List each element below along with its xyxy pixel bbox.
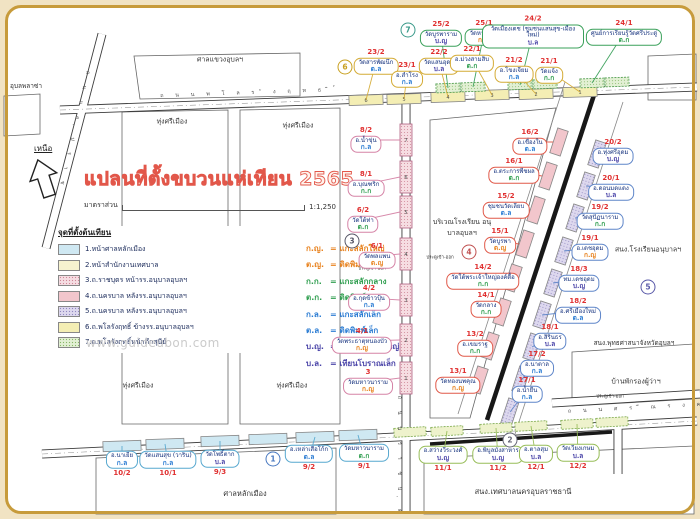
candle-label: 24/2วัดเมืองเดช (ชุมชนแสนสุข-เมืองใหม่)บ…	[482, 15, 584, 48]
candle-type: ก.ล	[144, 459, 191, 466]
legend-item-label: 6.ถ.พโลรังฤทธิ์ ข้างรร.อนุบาลอุบลฯ	[85, 322, 194, 333]
legend-swatch	[58, 260, 80, 271]
candle-label-bubble: อ.พิบูลมังสาหารบ.ญ	[472, 446, 523, 464]
candle-label-bubble: อ.น้ำขุ่นก.ล	[350, 135, 381, 153]
candle-label-bubble: อ.เหล่าเสือโก้กต.ล	[285, 445, 333, 463]
candle-label-number: 12/2	[569, 463, 586, 471]
candle-type: ก.ล	[517, 394, 538, 401]
candle-type: ก.ญ	[577, 252, 604, 259]
candle-label-number: 19/1	[581, 235, 598, 243]
legend-item-label: 2.หน้าสำนักงานเทศบาล	[85, 260, 158, 271]
candle-label: 15/2ชุมชนวัดเลียบต.ล	[483, 193, 530, 219]
watermark: www.guideubon.com	[86, 336, 220, 350]
candle-type: บ.ล	[593, 192, 629, 199]
type-key-abbr: บ.ญ.	[306, 340, 330, 353]
candle-label-number: 23/2	[367, 49, 384, 57]
type-key-abbr: ก.ล.	[306, 308, 330, 321]
legend-item-label: 4.ถ.นครบาล หลังรร.อนุบาลอุบลฯ	[85, 291, 187, 302]
place-label: สนง.โรงเรียนอนุบาลฯ	[612, 245, 684, 256]
candle-label-number: 6/2	[357, 207, 369, 215]
place-label: ศาลหลักเมือง	[223, 488, 266, 500]
candle-label-bubble: วัดมหาวนารามต.ก	[339, 444, 389, 462]
zone-circle: 4	[462, 245, 477, 260]
candle-type: บ.ญ	[563, 283, 594, 290]
candle-label-number: 20/2	[604, 139, 621, 147]
place-label: บ้านพักรองผู้ว่าฯ	[611, 377, 660, 388]
candle-label-number: 9/2	[303, 464, 315, 472]
candle-type: ต.ล	[488, 210, 525, 217]
candle-label-number: 17/2	[528, 351, 545, 359]
candle-label: 11/2อ.พิบูลมังสาหารบ.ญ	[472, 446, 523, 472]
zone-circle: 6	[338, 60, 353, 75]
candle-label: 8/1อ.บุณฑริกก.ก	[348, 171, 385, 197]
place-label: ทุ่งศรีเมือง	[277, 381, 308, 392]
street-name: ถ น น พ โ ล ร ั ง ฤ ท ธ ิ ์	[160, 86, 340, 100]
candle-label-bubble: อ.ทุ่งศรีอุดมบ.ญ	[593, 147, 634, 165]
candle-type: ต.ญ	[364, 260, 391, 267]
candle-label: 18/2อ.ศรีเมืองใหม่ต.ล	[555, 298, 601, 324]
candle-label-number: 11/1	[434, 465, 451, 473]
place-label: สนง.เทศบาลนครอุบลราชธานี	[475, 486, 572, 498]
candle-label: 24/1ศูนย์การเรียนรู้วัดศรีประดู่ต.ก	[586, 20, 662, 46]
place-label: ประตูเข้า-ออก	[426, 254, 454, 261]
candle-label-number: 24/2	[524, 15, 541, 23]
candle-label-number: 4/1	[356, 328, 368, 336]
candle-label-number: 10/1	[159, 470, 176, 478]
candle-label: 6/2วัดใต้ท่าต.ก	[347, 207, 378, 233]
candle-type: ก.ญ	[337, 345, 387, 352]
candle-type: ก.ล	[353, 302, 385, 309]
candle-label-number: 18/2	[569, 298, 586, 306]
candle-label-number: 22/1	[463, 46, 480, 54]
candle-type: บ.ล	[205, 458, 234, 465]
candle-type: บ.ล	[562, 452, 595, 459]
candle-label-number: 17/1	[518, 377, 535, 385]
legend-swatch	[58, 244, 80, 255]
candle-label-number: 23/1	[398, 62, 415, 70]
candle-label-number: 19/2	[591, 204, 608, 212]
candle-label: 12/2วัดเวียงเกษมบ.ล	[557, 444, 600, 470]
candle-label-bubble: อ.นาเยียก.ล	[106, 451, 138, 469]
candle-label-bubble: วัดมหาวนารามก.ญ	[343, 377, 393, 395]
scale-label: มาตราส่วน	[84, 200, 118, 211]
type-key-abbr: ก.ญ.	[306, 242, 330, 255]
legend-swatch	[58, 322, 80, 333]
candle-label-number: 10/2	[113, 470, 130, 478]
candle-label: 21/2อ.โขงเจียมก.ล	[495, 57, 534, 83]
candle-type: ต.ล	[290, 453, 328, 460]
candle-label: 3วัดมหาวนารามก.ญ	[343, 369, 393, 395]
candle-label-number: 18/3	[570, 266, 587, 274]
place-label: ทุ่งศรีเมือง	[123, 381, 154, 392]
candle-label-number: 15/2	[497, 193, 514, 201]
candle-label-number: 15/1	[491, 228, 508, 236]
candle-label: 4/2อ.กุดข้าวปุ้นก.ล	[348, 285, 390, 311]
candle-label-number: 9/1	[358, 463, 370, 471]
scale-value: 1:1,250	[309, 203, 336, 211]
zone-circle: 2	[503, 433, 518, 448]
candle-label-bubble: อ.สว่างวีระวงศ์บ.ญ	[419, 446, 468, 464]
legend-item: 1.หน้าศาลหลักเมือง	[58, 244, 304, 255]
place-label: ทุ่งศรีเมือง	[157, 117, 188, 128]
zone-circle: 5	[641, 280, 656, 295]
candle-type: บ.ญ	[477, 454, 518, 461]
candle-label: 17/1อ.น้ำยืนก.ล	[512, 377, 543, 403]
candle-label-number: 21/1	[540, 58, 557, 66]
candle-label-number: 22/2	[430, 49, 447, 57]
candle-label-bubble: อ.ดอนมดแดงบ.ล	[588, 183, 634, 201]
candle-type: ก.ญ	[440, 385, 475, 392]
place-label: ศาลแขวงอุบลฯ	[197, 55, 243, 66]
candle-type: ก.ก	[582, 221, 619, 228]
candle-label: 20/2อ.ทุ่งศรีอุดมบ.ญ	[593, 139, 634, 165]
candle-label: 9/2อ.เหล่าเสือโก้กต.ล	[285, 445, 333, 471]
candle-label: 10/2อ.นาเยียก.ล	[106, 451, 138, 477]
candle-label-bubble: วัดกลางก.ก	[471, 300, 502, 318]
candle-type: ก.ก	[476, 309, 497, 316]
place-label: สนง.พุทธศาสนาจังหวัดอุบลฯ	[594, 338, 675, 348]
legend-item-label: 3.ถ.ราชบุตร หน้ารร.อนุบาลอุบลฯ	[85, 275, 187, 286]
candle-label: 4/1วัดพระธาตุหนองบัวก.ญ	[332, 328, 392, 354]
candle-label: 12/1อ.ตาลสุมบ.ล	[519, 445, 553, 471]
candle-label-number: 12/1	[527, 464, 544, 472]
type-key-abbr: ต.ก.	[306, 291, 330, 304]
candle-type: ก.ล	[525, 368, 549, 375]
legend-header: จุดที่ตั้งต้นเทียน	[58, 226, 304, 239]
legend-item: 4.ถ.นครบาล หลังรร.อนุบาลอุบลฯ	[58, 291, 304, 302]
candle-label-number: 14/1	[477, 292, 494, 300]
candle-label-number: 9/3	[214, 469, 226, 477]
candle-label-number: 16/1	[505, 158, 522, 166]
candle-label-bubble: วัดพระธาตุหนองบัวก.ญ	[332, 336, 392, 354]
candle-label: 11/1อ.สว่างวีระวงศ์บ.ญ	[419, 446, 468, 472]
candle-label-bubble: อ.สิรินธรบ.ล	[533, 332, 566, 350]
candle-label: 10/1วัดแสนสุข (วาริน)ก.ล	[139, 451, 196, 477]
place-label: ทุ่งศรีเมือง	[283, 121, 314, 132]
candle-label-bubble: อ.เขมราฐก.ก	[457, 339, 493, 357]
candle-label: 9/3วัดโพธิ์ตากบ.ล	[200, 450, 239, 476]
candle-type: ต.ก	[344, 452, 384, 459]
candle-entry-name: วัดเมืองเดช (ชุมชนแสนสุข-เมืองใหม่)	[487, 26, 579, 39]
candle-label: 9/1วัดมหาวนารามต.ก	[339, 444, 389, 470]
place-label: ประตูเข้า-ออก	[596, 393, 624, 400]
north-label: เหนือ	[34, 142, 68, 155]
candle-type: บ.ล	[487, 39, 579, 46]
legend-item: 5.ถ.นครบาล หลังรร.อนุบาลอุบลฯ	[58, 306, 304, 317]
map-overlay: เหนือ แปลนที่ตั้งขบวนแห่เทียน 2565 มาตรา…	[0, 0, 700, 519]
candle-label: 17/2อ.นาตาลก.ล	[520, 351, 554, 377]
candle-label-number: 8/2	[360, 127, 372, 135]
legend-item: 3.ถ.ราชบุตร หน้ารร.อนุบาลอุบลฯ	[58, 275, 304, 286]
candle-label-number: 13/2	[466, 331, 483, 339]
candle-type: ต.ก	[493, 175, 534, 182]
type-key-row: บ.ล.= เทียนโบราณเล็ก	[306, 357, 399, 370]
type-key-abbr: ก.ก.	[306, 275, 330, 288]
candle-label: 6/1วัดพลแพนต.ญ	[359, 243, 396, 269]
candle-label: 18/3ทม.เดชอุดมบ.ญ	[558, 266, 599, 292]
candle-label: 22/1อ.ม่วงสามสิบต.ก	[450, 46, 494, 72]
legend-swatch	[58, 291, 80, 302]
type-key-abbr: ต.ล.	[306, 324, 330, 337]
street-name: ถ น น ศ ร ี ณ ร ง ค ์	[568, 400, 700, 416]
candle-label-number: 16/2	[521, 129, 538, 137]
candle-label-bubble: อ.ม่วงสามสิบต.ก	[450, 54, 494, 72]
candle-label-bubble: วัดบูรพารามบ.ญ	[420, 29, 462, 47]
candle-label-bubble: ศูนย์การเรียนรู้วัดศรีประดู่ต.ก	[586, 28, 662, 46]
candle-label: 21/1วัดแจ้งก.ก	[535, 58, 563, 84]
candle-label: 18/1อ.สิรินธรบ.ล	[533, 324, 566, 350]
candle-type: ต.ล	[560, 315, 596, 322]
candle-label-bubble: อ.นาตาลก.ล	[520, 359, 554, 377]
candle-label-bubble: อ.กุดข้าวปุ้นก.ล	[348, 293, 390, 311]
candle-type: ก.ญ	[348, 386, 388, 393]
candle-label-bubble: วัดทองนพคุณก.ญ	[435, 376, 480, 394]
candle-type: บ.ล	[524, 453, 548, 460]
type-key-name: เทียนโบราณเล็ก	[340, 359, 396, 368]
candle-label-number: 14/2	[474, 264, 491, 272]
candle-label-number: 21/2	[505, 57, 522, 65]
candle-label-bubble: อ.ตาลสุมบ.ล	[519, 445, 553, 463]
candle-label-number: 11/2	[489, 465, 506, 473]
type-key-abbr: ต.ญ.	[306, 258, 330, 271]
candle-label: 19/1อ.เดชอุดมก.ญ	[572, 235, 609, 261]
candle-label-bubble: วัดพลแพนต.ญ	[359, 251, 396, 269]
candle-label-bubble: วัดใต้พระเจ้าใหญ่องค์ตื้อก.ก	[446, 272, 519, 290]
candle-type: ก.ก	[462, 348, 488, 355]
legend-item: 6.ถ.พโลรังฤทธิ์ ข้างรร.อนุบาลอุบลฯ	[58, 322, 304, 333]
candle-type: บ.ญ	[598, 156, 629, 163]
candle-label-number: 20/1	[602, 175, 619, 183]
candle-label: 13/2อ.เขมราฐก.ก	[457, 331, 493, 357]
candle-label-bubble: ทม.เดชอุดมบ.ญ	[558, 274, 599, 292]
candle-label-number: 13/1	[449, 368, 466, 376]
scale-line	[122, 205, 305, 211]
candle-type: บ.ล	[538, 341, 561, 348]
candle-label-bubble: วัดเมืองเดช (ชุมชนแสนสุข-เมืองใหม่)บ.ล	[482, 24, 584, 48]
candle-label-bubble: วัดเวียงเกษมบ.ล	[557, 444, 600, 462]
candle-type: ก.ล	[500, 74, 529, 81]
candle-label: 14/2วัดใต้พระเจ้าใหญ่องค์ตื้อก.ก	[446, 264, 519, 290]
candle-label-bubble: อ.ศรีเมืองใหม่ต.ล	[555, 306, 601, 324]
zone-circle: 3	[345, 234, 360, 249]
legend-panel: จุดที่ตั้งต้นเทียน 1.หน้าศาลหลักเมือง2.ห…	[58, 226, 304, 353]
legend-swatch	[58, 337, 80, 348]
scale-bar: มาตราส่วน 1:1,250	[84, 200, 336, 211]
legend-items: 1.หน้าศาลหลักเมือง2.หน้าสำนักงานเทศบาล3.…	[58, 244, 304, 348]
candle-type: บ.ญ	[425, 38, 457, 45]
candle-label-number: 3	[366, 369, 371, 377]
candle-label-number: 24/1	[615, 20, 632, 28]
candle-label-bubble: อ.น้ำยืนก.ล	[512, 385, 543, 403]
candle-label-bubble: อ.เขื่องในต.ล	[512, 137, 547, 155]
candle-label-bubble: อ.บุณฑริกก.ก	[348, 179, 385, 197]
candle-label-bubble: อ.โขงเจียมก.ล	[495, 65, 534, 83]
candle-label-bubble: วัดใต้ท่าต.ก	[347, 215, 378, 233]
map-stage: 6543217654321 เหนือ แปลนที่ตั้งขบวนแห่เท…	[0, 0, 700, 519]
candle-label: 16/1อ.ตระการพืชผลต.ก	[488, 158, 539, 184]
candle-label-bubble: วัดโพธิ์ตากบ.ล	[200, 450, 239, 468]
candle-type: บ.ญ	[424, 454, 463, 461]
candle-type: ต.ก	[591, 37, 657, 44]
page-title: แปลนที่ตั้งขบวนแห่เทียน 2565	[84, 164, 354, 194]
candle-type: ต.ก	[455, 63, 489, 70]
candle-type: ก.ก	[540, 75, 558, 82]
candle-label-number: 6/1	[371, 243, 383, 251]
candle-label-bubble: อ.เดชอุดมก.ญ	[572, 243, 609, 261]
candle-type: ก.ล	[355, 144, 376, 151]
candle-label-bubble: วัดแสนสุข (วาริน)ก.ล	[139, 451, 196, 469]
legend-swatch	[58, 275, 80, 286]
candle-type: ก.ก	[353, 188, 380, 195]
candle-label-number: 8/1	[360, 171, 372, 179]
candle-label: 14/1วัดกลางก.ก	[471, 292, 502, 318]
candle-type: ก.ก	[451, 281, 514, 288]
candle-label-bubble: ชุมชนวัดเลียบต.ล	[483, 201, 530, 219]
zone-circle: 1	[266, 452, 281, 467]
candle-label-number: 25/2	[432, 21, 449, 29]
candle-label-bubble: วัดสุปัฏนารามก.ก	[577, 212, 624, 230]
legend-item-label: 1.หน้าศาลหลักเมือง	[85, 244, 145, 255]
place-label: อุบลพลาซ่า	[10, 81, 42, 91]
candle-label: 13/1วัดทองนพคุณก.ญ	[435, 368, 480, 394]
candle-label: 8/2อ.น้ำขุ่นก.ล	[350, 127, 381, 153]
candle-label-number: 18/1	[541, 324, 558, 332]
candle-type: ก.ล	[396, 79, 418, 86]
candle-type: ต.ญ	[489, 245, 511, 252]
type-key-abbr: บ.ล.	[306, 357, 330, 370]
candle-label-bubble: วัดแจ้งก.ก	[535, 66, 563, 84]
candle-type: ต.ล	[517, 146, 542, 153]
candle-label-bubble: อ.ตระการพืชผลต.ก	[488, 166, 539, 184]
street-name: ถ น น ร า ช บ ุ ต ร	[395, 396, 403, 519]
candle-label: 16/2อ.เขื่องในต.ล	[512, 129, 547, 155]
candle-label: 20/1อ.ดอนมดแดงบ.ล	[588, 175, 634, 201]
candle-label: 19/2วัดสุปัฏนารามก.ก	[577, 204, 624, 230]
candle-type: ต.ล	[359, 66, 394, 73]
legend-swatch	[58, 306, 80, 317]
candle-type: ก.ล	[111, 459, 133, 466]
candle-label: 25/2วัดบูรพารามบ.ญ	[420, 21, 462, 47]
candle-label-bubble: วัดบูรพาต.ญ	[484, 236, 516, 254]
candle-type: ต.ก	[352, 224, 373, 231]
zone-circle: 7	[401, 23, 416, 38]
candle-label: 15/1วัดบูรพาต.ญ	[484, 228, 516, 254]
candle-label-number: 4/2	[363, 285, 375, 293]
legend-item: 2.หน้าสำนักงานเทศบาล	[58, 260, 304, 271]
legend-item-label: 5.ถ.นครบาล หลังรร.อนุบาลอุบลฯ	[85, 306, 187, 317]
